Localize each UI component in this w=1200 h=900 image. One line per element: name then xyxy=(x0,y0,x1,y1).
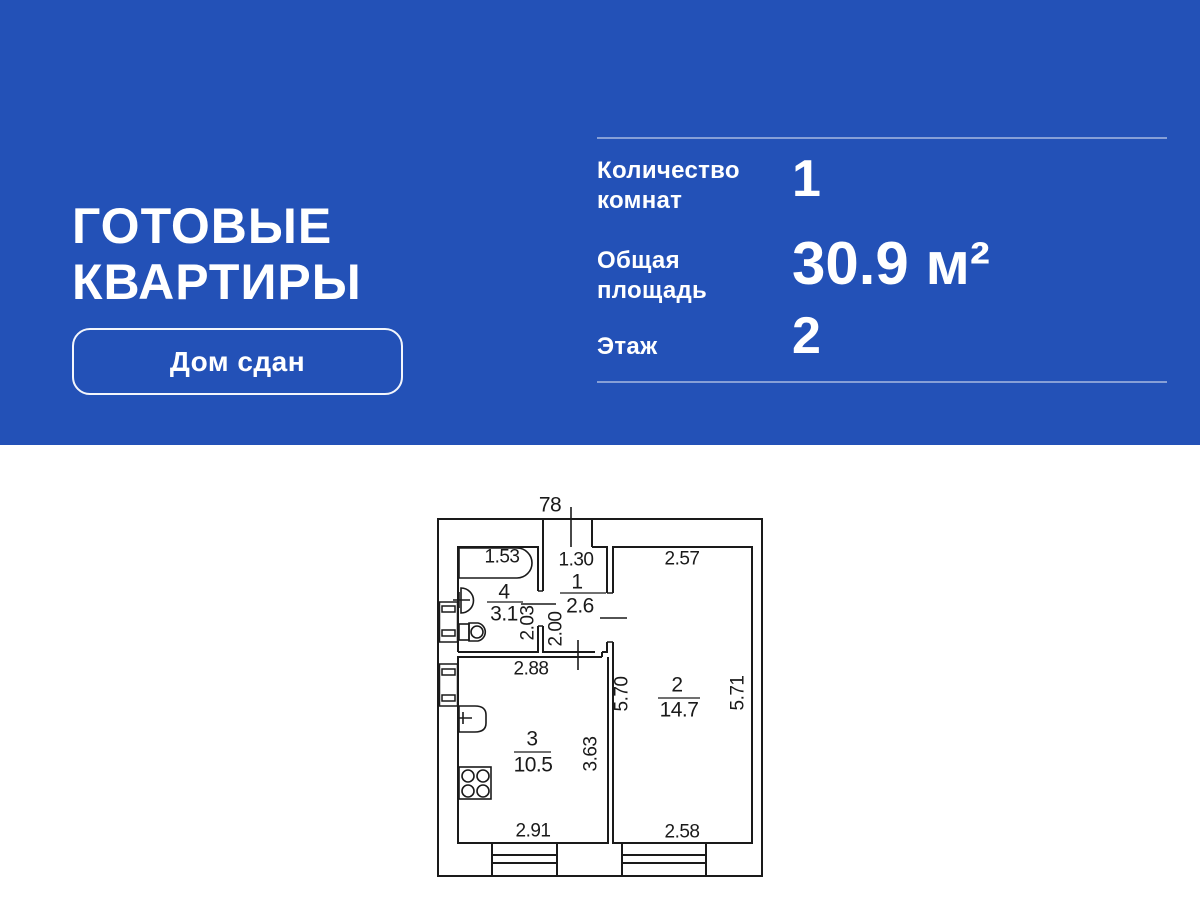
dimension-labels: 78 1.53 1.30 2.57 2.88 2.91 2.58 2.03 2.… xyxy=(485,494,749,843)
vent-shafts xyxy=(440,602,458,706)
dim-hall-depth: 2.00 xyxy=(546,612,567,647)
room1-area: 2.6 xyxy=(566,595,594,618)
stat-rooms-label: Количество комнат xyxy=(597,156,782,216)
dim-living-room-right: 5.71 xyxy=(728,676,749,711)
window-living-room xyxy=(622,844,706,876)
room3-area: 10.5 xyxy=(514,754,553,777)
dim-kitchen-depth: 3.63 xyxy=(581,737,602,772)
dim-bathroom-depth: 2.03 xyxy=(518,606,539,641)
banner-title-line2: КВАРТИРЫ xyxy=(72,254,362,310)
toilet-icon xyxy=(459,623,485,641)
vent-shaft-icon xyxy=(440,602,458,642)
badge-label: Дом сдан xyxy=(170,346,305,378)
banner-title: ГОТОВЫЕ КВАРТИРЫ xyxy=(72,198,362,310)
dim-kitchen-width-bottom: 2.91 xyxy=(516,821,551,842)
dim-living-room-left: 5.70 xyxy=(612,677,633,712)
apartment-stats: Количество комнат 1 Общая площадь 30.9 м… xyxy=(597,137,1167,383)
floor-plan: 78 1.53 1.30 2.57 2.88 2.91 2.58 2.03 2.… xyxy=(428,490,778,885)
dim-bathroom-width: 1.53 xyxy=(485,547,520,568)
dim-hall-width: 1.30 xyxy=(559,550,594,571)
stove-icon xyxy=(459,767,491,799)
house-delivered-badge[interactable]: Дом сдан xyxy=(72,328,403,395)
vent-shaft-icon xyxy=(440,664,458,706)
living-room-door xyxy=(600,593,627,642)
dim-entry-door: 78 xyxy=(539,494,561,517)
promo-banner: ГОТОВЫЕ КВАРТИРЫ Дом сдан Количество ком… xyxy=(0,0,1200,445)
walls xyxy=(438,519,762,876)
room2-number: 2 xyxy=(671,674,682,697)
stat-area-value: 30.9 м² xyxy=(792,234,990,294)
room4-area: 3.1 xyxy=(490,603,518,626)
flyer-page: ГОТОВЫЕ КВАРТИРЫ Дом сдан Количество ком… xyxy=(0,0,1200,900)
dim-kitchen-width-top: 2.88 xyxy=(514,659,549,680)
kitchen-sink-icon xyxy=(459,706,486,732)
outer-wall xyxy=(438,519,762,876)
window-kitchen xyxy=(492,844,557,876)
entry-door-jambs xyxy=(543,519,592,547)
dim-living-room-top: 2.57 xyxy=(665,549,700,570)
banner-title-line1: ГОТОВЫЕ xyxy=(72,198,362,254)
stat-area-label: Общая площадь xyxy=(597,246,782,306)
room4-number: 4 xyxy=(498,581,510,604)
room1-number: 1 xyxy=(571,571,582,594)
stat-floor-label: Этаж xyxy=(597,332,782,362)
dim-living-room-bottom: 2.58 xyxy=(665,822,700,843)
stat-floor-value: 2 xyxy=(792,310,821,362)
room3-number: 3 xyxy=(526,728,537,751)
room2-area: 14.7 xyxy=(660,699,699,722)
stat-rooms-value: 1 xyxy=(792,153,821,205)
